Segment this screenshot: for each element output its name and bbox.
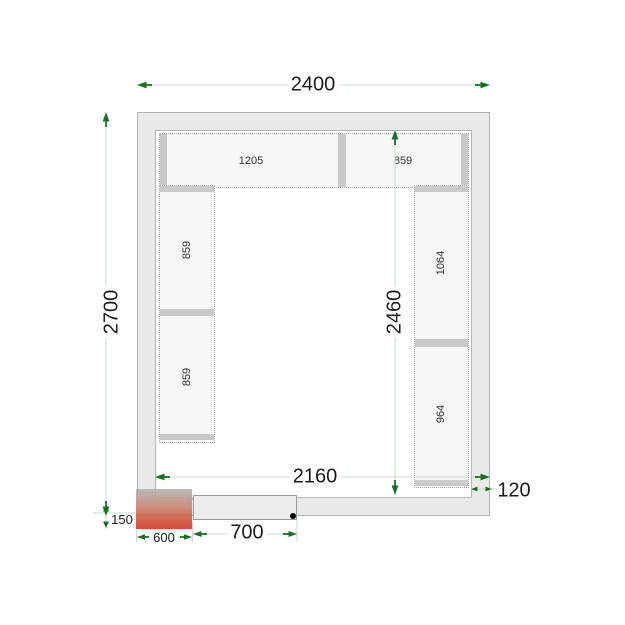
dim-inner-height-label: 2460 bbox=[385, 287, 406, 338]
dim-unit-width-label: 600 bbox=[151, 531, 177, 545]
dim-unit-protrusion-label: 150 bbox=[109, 513, 135, 527]
door-leaf bbox=[193, 495, 297, 520]
dim-outer-width-label: 2400 bbox=[288, 75, 339, 96]
dim-inner-width-label: 2160 bbox=[290, 467, 341, 488]
dim-outer-height-label: 2700 bbox=[102, 287, 123, 338]
door-handle-dot bbox=[290, 513, 296, 519]
cooling-unit bbox=[136, 489, 192, 529]
dim-wall-thickness-label: 120 bbox=[494, 481, 533, 502]
floor-plan: 1205 859 859 859 1064 964 bbox=[0, 0, 625, 625]
dim-door-width-label: 700 bbox=[227, 523, 266, 544]
